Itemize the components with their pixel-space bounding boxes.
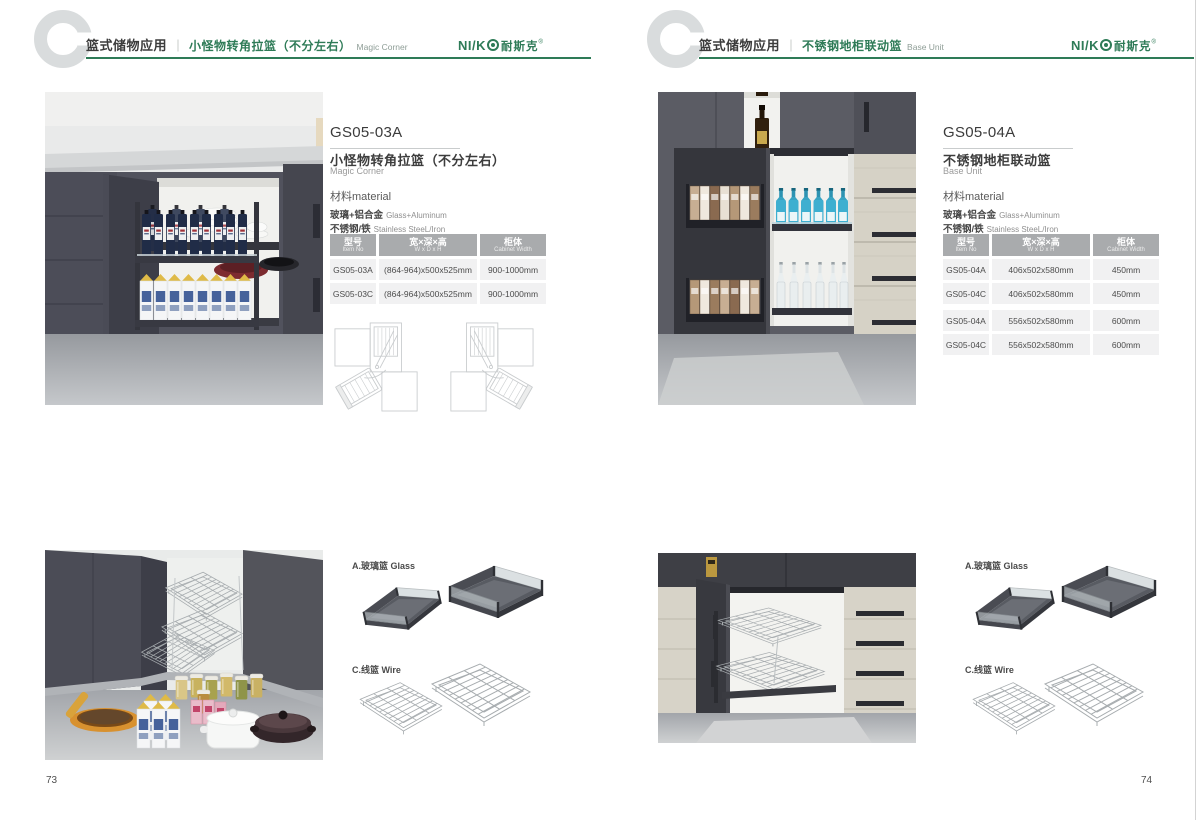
logo-cn: 耐斯克 <box>501 41 539 53</box>
col-cabinet: 柜体Cabinet Width <box>1093 234 1159 256</box>
cell-cabinet: 900-1000mm <box>480 283 546 304</box>
spec-table: 型号Item No 宽×深×高W x D x H 柜体Cabinet Width… <box>943 234 1159 358</box>
material-label: 材料material <box>330 188 391 204</box>
section-c-watermark <box>34 10 92 68</box>
catalog-page-right: 篮式储物应用｜不锈钢地柜联动篮Base Unit NI/K耐斯克® <box>613 0 1200 820</box>
wire-basket-large <box>426 656 536 728</box>
cell-model: GS05-04C <box>943 283 989 304</box>
glass-basket-large <box>1059 558 1159 622</box>
col-model: 型号Item No <box>330 234 376 256</box>
install-diagrams <box>333 318 535 414</box>
table-row: GS05-04C 556x502x580mm 600mm <box>943 334 1159 355</box>
secondary-photo-wire-corner <box>45 550 323 760</box>
glass-basket-large <box>446 558 546 622</box>
page-header: 篮式储物应用｜小怪物转角拉篮（不分左右）Magic Corner <box>86 35 408 55</box>
cell-cabinet: 450mm <box>1093 259 1159 280</box>
logo-latin: NI/K <box>1071 38 1099 53</box>
accessory-wire-label: C.线篮 Wire <box>965 663 1014 676</box>
col-size: 宽×深×高W x D x H <box>992 234 1090 256</box>
page-title-en: Magic Corner <box>357 42 408 52</box>
table-row: GS05-04A 556x502x580mm 600mm <box>943 310 1159 331</box>
main-photo-base-unit <box>658 92 916 405</box>
page-number: 73 <box>46 775 57 786</box>
page-title-en: Base Unit <box>907 42 944 52</box>
cell-cabinet: 900-1000mm <box>480 259 546 280</box>
material-en: Stainless SteeL/Iron <box>987 225 1059 234</box>
header-rule <box>699 57 1194 59</box>
page-title-cn: 不锈钢地柜联动篮 <box>802 39 902 53</box>
brand-logo: NI/K耐斯克® <box>1071 37 1156 55</box>
logo-o-icon <box>487 39 499 51</box>
cell-model: GS05-03C <box>330 283 376 304</box>
logo-o-icon <box>1100 39 1112 51</box>
product-name-en: Base Unit <box>943 166 982 176</box>
wire-basket-large <box>1039 656 1149 728</box>
page-title-cn: 小怪物转角拉篮（不分左右） <box>189 39 352 53</box>
page-header: 篮式储物应用｜不锈钢地柜联动篮Base Unit <box>699 35 944 55</box>
page-number: 74 <box>1141 775 1152 786</box>
product-model: GS05-04A <box>943 124 1073 149</box>
cell-size: 406x502x580mm <box>992 259 1090 280</box>
cell-model: GS05-04C <box>943 334 989 355</box>
section-category: 篮式储物应用 <box>699 38 780 53</box>
table-row: GS05-03A (864-964)x500x525mm 900-1000mm <box>330 259 546 280</box>
material-label: 材料material <box>943 188 1004 204</box>
accessory-glass-label: A.玻璃篮 Glass <box>352 559 415 572</box>
logo-registered-mark: ® <box>539 40 543 46</box>
catalog-page-left: 篮式储物应用｜小怪物转角拉篮（不分左右）Magic Corner NI/K耐斯克… <box>0 0 600 820</box>
cell-size: (864-964)x500x525mm <box>379 283 477 304</box>
logo-latin: NI/K <box>458 38 486 53</box>
col-model: 型号Item No <box>943 234 989 256</box>
logo-registered-mark: ® <box>1152 40 1156 46</box>
corner-diagram-left <box>333 318 423 414</box>
product-model: GS05-03A <box>330 124 460 149</box>
table-row: GS05-04C 406x502x580mm 450mm <box>943 283 1159 304</box>
main-photo-magic-corner <box>45 92 323 405</box>
accessory-glass-label: A.玻璃篮 Glass <box>965 559 1028 572</box>
glass-basket-small <box>968 572 1061 642</box>
col-cabinet: 柜体Cabinet Width <box>480 234 546 256</box>
header-divider: ｜ <box>172 39 184 53</box>
cell-cabinet: 600mm <box>1093 310 1159 331</box>
cell-cabinet: 600mm <box>1093 334 1159 355</box>
accessory-wire-label: C.线篮 Wire <box>352 663 401 676</box>
section-c-watermark <box>647 10 705 68</box>
spec-table: 型号Item No 宽×深×高W x D x H 柜体Cabinet Width… <box>330 234 546 307</box>
corner-diagram-right <box>445 318 535 414</box>
logo-cn: 耐斯克 <box>1114 41 1152 53</box>
spec-table-header: 型号Item No 宽×深×高W x D x H 柜体Cabinet Width <box>330 234 546 256</box>
cell-cabinet: 450mm <box>1093 283 1159 304</box>
section-category: 篮式储物应用 <box>86 38 167 53</box>
cell-size: (864-964)x500x525mm <box>379 259 477 280</box>
cell-size: 406x502x580mm <box>992 283 1090 304</box>
table-row: GS05-03C (864-964)x500x525mm 900-1000mm <box>330 283 546 304</box>
secondary-photo-wire-base-unit <box>658 553 916 743</box>
header-rule <box>86 57 591 59</box>
spec-table-header: 型号Item No 宽×深×高W x D x H 柜体Cabinet Width <box>943 234 1159 256</box>
brand-logo: NI/K耐斯克® <box>458 37 543 55</box>
col-size: 宽×深×高W x D x H <box>379 234 477 256</box>
header-divider: ｜ <box>785 39 797 53</box>
cell-size: 556x502x580mm <box>992 334 1090 355</box>
page-edge-line <box>1195 0 1196 820</box>
glass-basket-small <box>355 572 448 642</box>
cell-size: 556x502x580mm <box>992 310 1090 331</box>
cell-model: GS05-03A <box>330 259 376 280</box>
cell-model: GS05-04A <box>943 259 989 280</box>
product-name-en: Magic Corner <box>330 166 384 176</box>
table-row: GS05-04A 406x502x580mm 450mm <box>943 259 1159 280</box>
cell-model: GS05-04A <box>943 310 989 331</box>
material-en: Stainless SteeL/Iron <box>374 225 446 234</box>
